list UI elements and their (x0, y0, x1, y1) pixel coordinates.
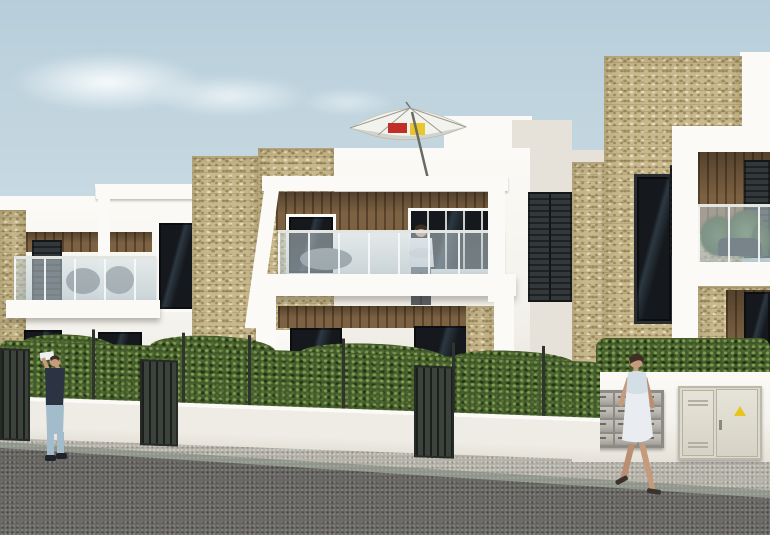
garden-gate (414, 365, 454, 458)
middle-pergola-post-right (488, 176, 505, 302)
garden-gate (0, 348, 30, 441)
right-balcony-slab (690, 262, 770, 286)
fence-post (342, 339, 345, 413)
photographer-leg (47, 432, 54, 456)
left-pergola-beam (96, 186, 196, 199)
tower-window (634, 174, 674, 324)
right-balcony-glass-railing (698, 204, 770, 265)
walking-woman-person (606, 352, 670, 507)
photographer-shirt (45, 368, 65, 407)
cloud (150, 75, 310, 117)
middle-balcony-slab (258, 274, 516, 296)
fence-post (92, 329, 95, 403)
photographer-leg (57, 432, 64, 454)
warning-triangle-icon (734, 406, 746, 416)
parasol-red-label (388, 123, 407, 133)
cabinet-door-right (716, 389, 758, 457)
left-balcony-slab (6, 300, 160, 318)
left-building-parapet (0, 196, 100, 210)
fence-post (542, 346, 545, 420)
street-scene (0, 0, 770, 535)
woman-dress-bodice (626, 371, 648, 394)
middle-balcony-glass-railing (278, 230, 504, 279)
fence-post (182, 333, 185, 407)
photographer-shoe (45, 455, 56, 461)
woman-front-leg (642, 444, 650, 478)
woman-sandal (647, 488, 662, 495)
photographer-person (32, 350, 82, 465)
middle-groundfloor-soffit (278, 306, 494, 328)
left-balcony-glass-railing (14, 256, 156, 305)
parasol-canopy (350, 108, 466, 140)
photographer-jeans (46, 405, 64, 434)
roof-parasol (348, 100, 468, 185)
cabinet-vent (688, 398, 708, 406)
cabinet-vent (688, 440, 708, 448)
photographer-shoe (56, 453, 67, 459)
recess-shutter-divider (549, 194, 551, 300)
middle-pergola-beam (262, 176, 508, 191)
cabinet-handle (719, 420, 722, 430)
fence-post (248, 335, 251, 409)
woman-back-leg (624, 444, 632, 476)
garden-gate (140, 359, 178, 446)
woman-front-ankle (650, 478, 653, 490)
garden-frontage (0, 332, 600, 466)
